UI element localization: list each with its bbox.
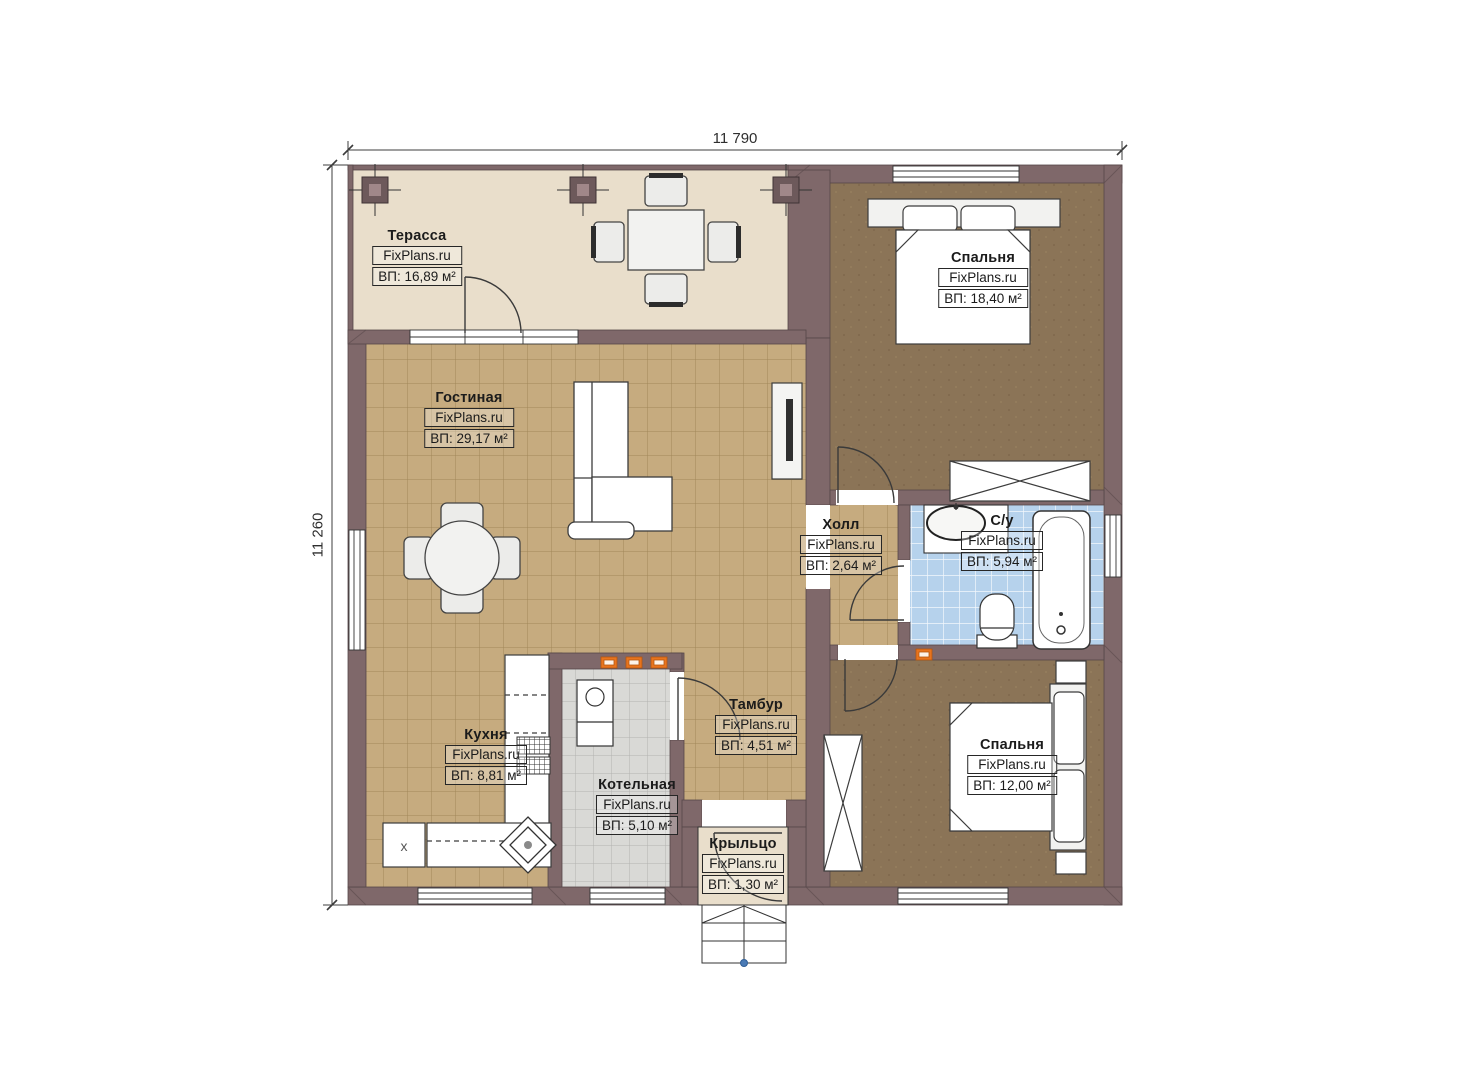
fridge: x [383, 823, 425, 867]
room-label-living-room: Гостиная FixPlans.ru ВП: 29,17 м² [424, 390, 514, 448]
fridge-mark: x [401, 838, 408, 854]
area-box: ВП: 4,51 м² [715, 736, 797, 755]
room-name: Крыльцо [702, 836, 784, 852]
window-boiler-bottom [590, 888, 665, 904]
brand-box: FixPlans.ru [596, 795, 678, 814]
window-bedroom1-top [893, 166, 1019, 182]
area-box: ВП: 8,81 м² [445, 766, 527, 785]
brand-box: FixPlans.ru [967, 755, 1057, 774]
window-bathroom-right [1105, 515, 1121, 577]
room-name: Терасса [372, 228, 462, 244]
room-name: Холл [800, 517, 882, 533]
room-name: Тамбур [715, 697, 797, 713]
porch-steps [702, 905, 786, 967]
boiler-unit [577, 680, 613, 746]
window-living-left [349, 530, 365, 650]
dimension-height-label: 11 260 [310, 513, 327, 558]
brand-box: FixPlans.ru [961, 531, 1043, 550]
area-box: ВП: 1,30 м² [702, 875, 784, 894]
area-box: ВП: 16,89 м² [372, 267, 462, 286]
floor-plan-graphic: x [0, 0, 1473, 1080]
room-label-hall: Холл FixPlans.ru ВП: 2,64 м² [800, 517, 882, 575]
area-box: ВП: 12,00 м² [967, 776, 1057, 795]
brand-box: FixPlans.ru [372, 246, 462, 265]
wardrobe-bedroom2 [824, 735, 862, 871]
room-name: С/у [961, 513, 1043, 529]
tv-stand [772, 383, 802, 479]
room-label-porch: Крыльцо FixPlans.ru ВП: 1,30 м² [702, 836, 784, 894]
room-name: Спальня [967, 737, 1057, 753]
room-label-kitchen: Кухня FixPlans.ru ВП: 8,81 м² [445, 727, 527, 785]
brand-box: FixPlans.ru [715, 715, 797, 734]
room-label-bathroom: С/у FixPlans.ru ВП: 5,94 м² [961, 513, 1043, 571]
window-kitchen-bottom [418, 888, 532, 904]
room-name: Котельная [596, 777, 678, 793]
toilet [977, 594, 1017, 648]
room-name: Спальня [938, 250, 1028, 266]
window-bedroom2-bottom [898, 888, 1008, 904]
brand-box: FixPlans.ru [800, 535, 882, 554]
area-box: ВП: 5,10 м² [596, 816, 678, 835]
wardrobe-bedroom1 [950, 461, 1090, 501]
room-label-terrace: Терасса FixPlans.ru ВП: 16,89 м² [372, 228, 462, 286]
room-name: Гостиная [424, 390, 514, 406]
area-box: ВП: 18,40 м² [938, 289, 1028, 308]
floor-plan-page: x [0, 0, 1473, 1080]
brand-box: FixPlans.ru [424, 408, 514, 427]
brand-box: FixPlans.ru [702, 854, 784, 873]
room-label-bedroom-2: Спальня FixPlans.ru ВП: 12,00 м² [967, 737, 1057, 795]
dimension-width-label: 11 790 [713, 130, 758, 147]
area-box: ВП: 2,64 м² [800, 556, 882, 575]
brand-box: FixPlans.ru [938, 268, 1028, 287]
terrace-door-unit [410, 330, 578, 344]
room-label-bedroom-1: Спальня FixPlans.ru ВП: 18,40 м² [938, 250, 1028, 308]
area-box: ВП: 29,17 м² [424, 429, 514, 448]
area-box: ВП: 5,94 м² [961, 552, 1043, 571]
brand-box: FixPlans.ru [445, 745, 527, 764]
room-label-vestibule: Тамбур FixPlans.ru ВП: 4,51 м² [715, 697, 797, 755]
room-label-boiler-room: Котельная FixPlans.ru ВП: 5,10 м² [596, 777, 678, 835]
room-name: Кухня [445, 727, 527, 743]
